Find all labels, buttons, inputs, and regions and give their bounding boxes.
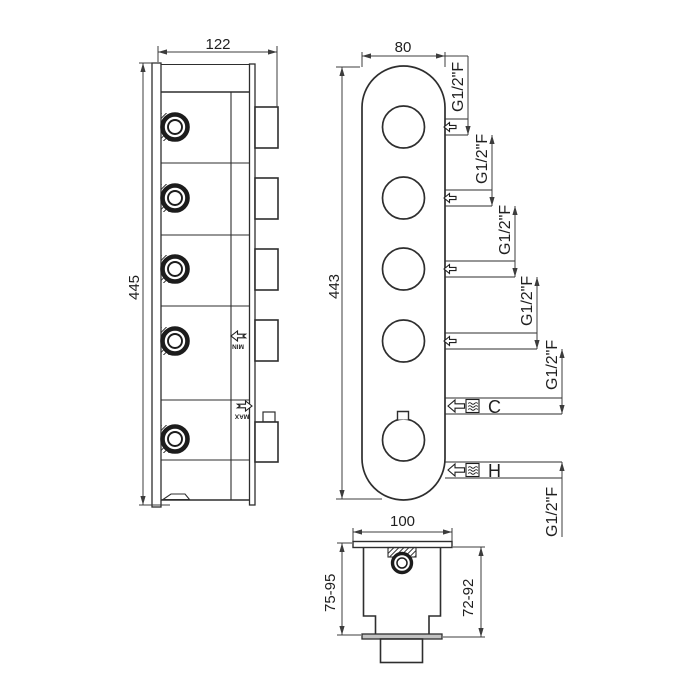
thread-label-6: G1/2"F [545,487,561,537]
hot-flow-arrow-icon [448,464,465,476]
section-knob [381,639,423,663]
dim-443-label: 443 [327,274,342,299]
dim-80-label: 80 [383,40,423,55]
handle-5-thermostat [255,422,278,462]
dim-445-label: 445 [127,275,142,300]
side-port-circles [163,115,188,452]
hot-inlet-icons [448,464,479,477]
cold-port-label: C [488,398,501,416]
handle-2 [255,178,278,219]
side-view [139,46,278,507]
handle-4 [255,320,278,361]
min-label: MIN [229,342,247,349]
dim-122-lines [158,46,277,107]
thread-label-4: G1/2"F [520,276,536,326]
technical-drawing-canvas: 122 445 80 443 G1/2"F G1/2"F G1/2"F G1/2… [0,0,700,700]
cold-inlet-icons [448,400,479,413]
thermostat-button [263,412,275,422]
thread-label-5: G1/2"F [545,340,561,390]
port-strips [445,119,562,478]
dim-100-label: 100 [382,514,423,529]
cold-flow-arrow-icon [448,400,465,412]
handle-1 [255,107,278,148]
max-label: MAX [233,412,251,419]
drawing-linework [0,0,700,700]
dim-122-label: 122 [193,37,243,52]
thread-label-1: G1/2"F [451,62,467,112]
handle-3 [255,249,278,290]
min-arrow-icon [231,331,246,341]
thermostat-button-front [398,412,409,420]
thread-dim-lines [465,56,564,537]
dim-75-95-lines [337,543,361,635]
thread-label-2: G1/2"F [475,134,491,184]
hot-port-label: H [488,462,501,480]
thread-label-3: G1/2"F [498,205,514,255]
dim-75-95-label: 75-95 [323,574,338,612]
dim-72-92-label: 72-92 [461,579,476,617]
